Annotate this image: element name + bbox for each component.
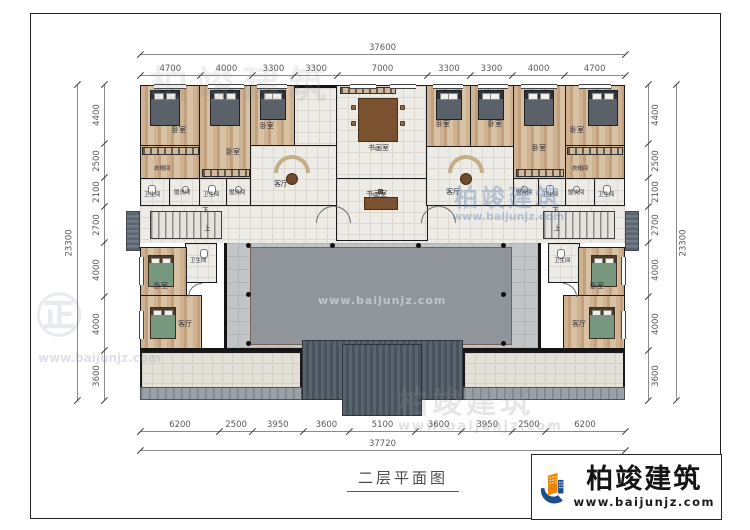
dim-segment: 4400	[649, 85, 663, 144]
logo-url: www.baijunjz.com	[574, 495, 715, 509]
dim-value: 2500	[225, 420, 247, 430]
stairs-up-label: 上	[554, 225, 561, 232]
dim-segment: 3300	[470, 61, 513, 75]
dim-value: 2700	[92, 214, 102, 236]
courtyard	[250, 247, 512, 345]
room-label-cloakroom: 衣帽间	[154, 167, 171, 173]
dim-segment: 2700	[649, 207, 663, 244]
window-icon	[621, 311, 626, 339]
dim-value: 23300	[65, 229, 75, 256]
bed-icon	[478, 90, 504, 120]
round-table-icon	[460, 173, 472, 185]
window-icon	[154, 84, 186, 89]
court-column-dot	[246, 292, 251, 297]
dim-segment: 3600	[303, 417, 349, 431]
court-column-dot	[246, 341, 251, 346]
room-label-bedroom: 卧室	[226, 149, 240, 156]
window-icon	[208, 84, 244, 89]
dim-value: 3600	[92, 365, 102, 387]
baijun-logo-icon	[538, 462, 568, 512]
dim-segment: 2700	[90, 207, 104, 244]
dim-value: 2500	[518, 420, 540, 430]
dim-value: 3600	[316, 420, 338, 430]
conference-table-icon	[358, 98, 398, 142]
dim-segment: 3950	[252, 417, 303, 431]
dim-value: 6200	[169, 420, 191, 430]
dim-value: 2100	[92, 182, 102, 204]
wardrobe-icon	[516, 169, 564, 177]
dim-segment: 4000	[90, 297, 104, 351]
desk-icon	[364, 197, 398, 210]
court-column-dot	[501, 292, 506, 297]
dim-segment: 5100	[350, 417, 416, 431]
bed-icon	[150, 90, 180, 126]
room-label-washroom: 盥洗间	[568, 191, 585, 197]
room-label-washroom: 盥洗间	[174, 191, 191, 197]
dim-segment: 7000	[337, 61, 427, 75]
drawing-title: 二层平面图	[347, 467, 459, 492]
dim-left-segments: 4400 2500 2100 2700 4000 4000 3600	[90, 85, 105, 400]
dim-value: 4000	[651, 313, 661, 335]
dim-value: 4000	[92, 313, 102, 335]
dim-value: 37720	[369, 439, 396, 449]
window-icon	[621, 257, 626, 285]
door-arc-icon	[188, 283, 202, 297]
room-label-bedroom: 卧室	[436, 121, 450, 128]
dim-value: 5100	[372, 420, 394, 430]
wall	[224, 243, 227, 351]
room-label-living: 客厅	[446, 189, 460, 196]
dim-segment: 23300	[677, 85, 691, 400]
bed-icon	[524, 90, 554, 126]
court-column-dot	[330, 243, 335, 248]
dim-value: 3300	[481, 64, 503, 74]
dim-segment: 37720	[140, 436, 625, 450]
dim-value: 4700	[584, 64, 606, 74]
eave-roof	[463, 387, 625, 400]
dim-value: 3300	[263, 64, 285, 74]
window-icon	[433, 84, 463, 89]
room-label-bathroom: 卫生间	[554, 259, 571, 265]
dim-segment: 2500	[90, 144, 104, 178]
dim-segment: 4700	[140, 61, 201, 75]
dim-segment: 37600	[140, 40, 625, 54]
bed-icon	[210, 90, 240, 126]
stairs-down-label: 下	[552, 207, 559, 214]
drawing-sheet: 37600 4700 4000 3300 3300 7000 3300 3300…	[0, 0, 750, 530]
stairs-up-label: 上	[204, 225, 211, 232]
dim-segment: 3300	[428, 61, 471, 75]
dim-value: 4000	[216, 64, 238, 74]
room-label-bedroom: 卧室	[532, 145, 546, 152]
room-label-bedroom: 卧室	[172, 127, 186, 134]
chair-icon	[351, 121, 356, 126]
dim-value: 2500	[651, 151, 661, 173]
dim-value: 6200	[574, 420, 596, 430]
dim-value: 2700	[651, 214, 661, 236]
room-label-living: 客厅	[274, 181, 288, 188]
dim-value: 7000	[372, 64, 394, 74]
window-icon	[390, 84, 416, 89]
dim-segment: 3600	[90, 351, 104, 400]
room-label-living: 客厅	[178, 321, 192, 328]
dim-left-total: 23300	[63, 85, 78, 400]
floor-plan: 卧室 卧室 卧室 衣帽间 卫生间 盥洗间 卫生间 盥洗间 客厅 书画室 书画室 …	[140, 85, 625, 400]
room-label-washroom: 盥洗间	[229, 191, 246, 197]
gate-roof-center	[342, 344, 422, 416]
stairs-down-label: 下	[202, 207, 209, 214]
staircase	[150, 211, 222, 239]
dim-value: 23300	[679, 229, 689, 256]
bed-icon	[588, 90, 618, 126]
dim-value: 4000	[651, 259, 661, 281]
dim-segment: 3950	[462, 417, 513, 431]
room-label-bathroom: 卫生间	[542, 193, 559, 199]
court-column-dot	[246, 243, 251, 248]
dim-value: 3300	[438, 64, 460, 74]
dim-value: 4700	[159, 64, 181, 74]
room-label-bathroom: 卫生间	[144, 193, 161, 199]
room-label-cloakroom: 衣帽间	[572, 167, 589, 173]
room-label-bedroom: 卧室	[488, 121, 502, 128]
dim-segment: 4700	[564, 61, 625, 75]
dim-top-segments: 4700 4000 3300 3300 7000 3300 3300 4000 …	[140, 61, 625, 76]
dim-segment: 3600	[415, 417, 461, 431]
window-icon	[257, 84, 287, 89]
side-canopy-roof	[126, 211, 140, 251]
door-arc-icon	[563, 283, 577, 297]
dim-value: 2100	[651, 182, 661, 204]
dim-segment: 23300	[63, 85, 77, 400]
bed-icon	[589, 307, 615, 339]
window-icon	[478, 84, 508, 89]
dim-bottom-total: 37720	[140, 436, 625, 451]
bed-icon	[150, 307, 176, 339]
dim-value: 4400	[651, 104, 661, 126]
dim-right-total: 23300	[676, 85, 691, 400]
chair-icon	[400, 121, 405, 126]
dim-value: 37600	[369, 43, 396, 53]
side-canopy-roof	[625, 211, 639, 251]
room-label-bathroom: 卫生间	[203, 193, 220, 199]
room-label-bedroom: 卧室	[570, 127, 584, 134]
dim-value: 4000	[528, 64, 550, 74]
logo-text-column: 柏竣建筑 www.baijunjz.com	[574, 465, 715, 509]
dim-segment: 3600	[649, 351, 663, 400]
wardrobe-icon	[202, 169, 250, 177]
room-label-bathroom: 卫生间	[598, 193, 615, 199]
room-label-bedroom: 卧室	[260, 123, 274, 130]
dim-segment: 4000	[513, 61, 565, 75]
room-label-bedroom: 卧室	[154, 283, 168, 290]
court-column-dot	[501, 243, 506, 248]
dim-segment: 3300	[252, 61, 295, 75]
dim-segment: 2100	[90, 178, 104, 206]
dim-segment: 4000	[201, 61, 253, 75]
wardrobe-icon	[142, 147, 199, 155]
window-icon	[139, 257, 144, 285]
room-label-washroom: 盥洗间	[516, 191, 533, 197]
dim-segment: 6200	[140, 417, 220, 431]
wardrobe-icon	[567, 147, 623, 155]
dim-segment: 2500	[513, 417, 545, 431]
dim-segment: 4400	[90, 85, 104, 144]
dim-segment: 6200	[545, 417, 625, 431]
dim-bottom-segments: 6200 2500 3950 3600 5100 3600 3950 2500 …	[140, 417, 625, 432]
dim-segment: 4000	[649, 297, 663, 351]
room-label-bedroom: 卧室	[590, 283, 604, 290]
room-label-studio: 书画室	[368, 145, 389, 152]
dim-right-segments: 4400 2500 2100 2700 4000 4000 3600	[648, 85, 663, 400]
dim-top-total: 37600	[140, 40, 625, 55]
window-icon	[350, 84, 376, 89]
room-label-bathroom: 卫生间	[190, 259, 207, 265]
bed-icon	[260, 90, 286, 120]
room-label-living: 客厅	[572, 321, 586, 328]
wall	[538, 243, 541, 351]
dim-segment: 4000	[90, 243, 104, 297]
dim-value: 4000	[92, 259, 102, 281]
window-icon	[521, 84, 557, 89]
dim-value: 4400	[92, 104, 102, 126]
logo-brand-name: 柏竣建筑	[586, 465, 702, 495]
chair-icon	[351, 105, 356, 110]
eave-roof	[140, 387, 302, 400]
dim-segment: 3300	[295, 61, 338, 75]
dim-segment: 2500	[220, 417, 252, 431]
dim-value: 3300	[305, 64, 327, 74]
court-column-dot	[416, 243, 421, 248]
dim-segment: 4000	[649, 243, 663, 297]
dim-value: 3950	[267, 420, 289, 430]
dim-value: 3950	[476, 420, 498, 430]
logo-box: 柏竣建筑 www.baijunjz.com	[531, 454, 722, 520]
bed-icon	[436, 90, 462, 120]
dim-value: 2500	[92, 151, 102, 173]
dim-value: 3600	[428, 420, 450, 430]
window-icon	[139, 311, 144, 339]
dim-value: 3600	[651, 365, 661, 387]
window-icon	[579, 84, 611, 89]
room-label-studio: 书画室	[366, 191, 387, 198]
chair-icon	[400, 105, 405, 110]
court-column-dot	[501, 341, 506, 346]
